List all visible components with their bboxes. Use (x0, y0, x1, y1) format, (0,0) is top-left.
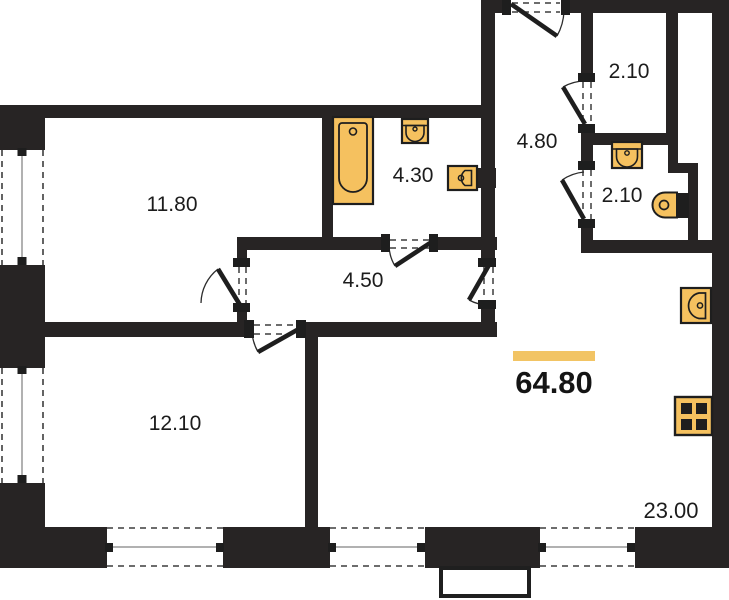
wall-segment (562, 0, 728, 13)
porch-outline (441, 568, 529, 596)
door-jamb (429, 234, 438, 252)
wall-segment (581, 240, 728, 253)
wall-segment (0, 105, 45, 150)
wardrobe-door (563, 73, 595, 133)
door-leaf (562, 180, 584, 219)
door-jamb (233, 303, 250, 312)
wall-segment (688, 170, 698, 240)
door-jamb (578, 219, 595, 228)
wall-segment (300, 322, 497, 337)
wall-segment (0, 265, 45, 368)
entrance-door (502, 0, 570, 36)
room-area-label-wc: 2.10 (602, 184, 643, 208)
wall-segment (237, 237, 385, 250)
door-jamb (502, 0, 511, 15)
window (2, 148, 43, 265)
door-jamb (233, 258, 250, 267)
wall-segment (666, 13, 678, 145)
room-area-label-bedroom-top-left: 11.80 (147, 193, 198, 217)
wall-segment (425, 527, 540, 568)
bathtub-icon (333, 117, 373, 204)
wall-segment (223, 527, 330, 568)
window-cap (538, 543, 546, 552)
window-cap (216, 543, 224, 552)
window (538, 528, 635, 566)
wall-segment (305, 337, 318, 527)
door-jamb (244, 320, 254, 338)
room-area-label-entry-hall: 4.80 (517, 130, 558, 154)
window-cap (328, 543, 336, 552)
wall-segment (481, 13, 495, 262)
kitchen-sink-icon (681, 288, 711, 323)
door-jamb (478, 300, 496, 309)
washbasin-icon (612, 142, 642, 168)
bathroom-door (381, 234, 438, 266)
room-area-label-bathroom: 4.30 (393, 164, 434, 188)
door-jamb (478, 258, 496, 267)
door-opening (583, 170, 591, 219)
window-cap (18, 257, 27, 265)
door-jamb (578, 73, 595, 82)
window-cap (18, 475, 27, 483)
door-opening (583, 82, 591, 124)
door-leaf (469, 265, 489, 300)
sink-icon (448, 166, 477, 190)
door-leaf (218, 269, 240, 305)
room-area-label-hallway: 4.50 (343, 269, 384, 293)
window (328, 528, 425, 566)
toilet-icon (653, 193, 690, 219)
window-cap (417, 543, 425, 552)
door-opening (239, 267, 246, 303)
wall-segment (0, 105, 495, 118)
room-area-label-wardrobe: 2.10 (609, 60, 650, 84)
wall-segment (635, 527, 728, 568)
door-jamb (296, 320, 306, 338)
window-cap (627, 543, 635, 552)
door-swing-arc (201, 269, 218, 303)
door-jamb (381, 234, 390, 252)
wall-segment (476, 168, 496, 188)
door-jamb (578, 161, 595, 170)
floor-plan-drawing (0, 0, 729, 600)
window-cap (18, 366, 27, 374)
door-jamb (561, 0, 570, 15)
bedroom-bottom-left-door (244, 320, 306, 352)
window-cap (105, 543, 113, 552)
room-area-label-bedroom-bottom-left: 12.10 (149, 412, 202, 436)
wall-segment (712, 0, 729, 568)
stove-icon (675, 397, 712, 435)
wall-segment (45, 322, 250, 337)
window-cap (18, 148, 27, 156)
room-area-label-kitchen-living: 23.00 (643, 498, 698, 524)
bedroom-top-left-door (201, 258, 250, 312)
window (2, 366, 43, 483)
wall-segment (322, 118, 333, 237)
total-area-highlight (513, 351, 595, 361)
wall-segment (581, 13, 593, 80)
door-jamb (578, 124, 595, 133)
total-area-label: 64.80 (515, 365, 593, 401)
wc-door (562, 161, 595, 228)
hallway-living-door (469, 258, 496, 309)
window (105, 528, 224, 566)
floor-plan: 11.80 12.10 4.50 4.30 4.80 2.10 2.10 23.… (0, 0, 729, 600)
door-leaf (511, 4, 557, 36)
washbasin-icon (402, 119, 428, 143)
door-leaf (563, 87, 585, 124)
door-swing-arc (562, 172, 584, 180)
wall-segment (0, 527, 107, 568)
door-leaf (395, 243, 430, 266)
